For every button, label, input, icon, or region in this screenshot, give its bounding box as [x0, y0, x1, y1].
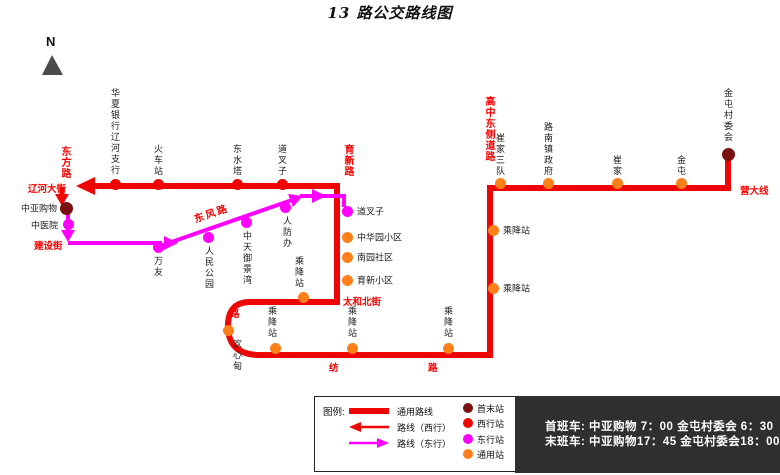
street-label: 路: [428, 360, 438, 374]
station-label: 乘降站: [503, 282, 530, 295]
station-dot: [280, 202, 291, 213]
station-dot: [63, 219, 74, 230]
legend-stop-west: 西行站: [463, 417, 504, 429]
station-label: 人防办: [282, 216, 292, 249]
legend-line-label: 路线（东行）: [397, 437, 451, 450]
station-label: 乘降站: [503, 224, 530, 237]
legend-line-common: 通用路线: [347, 405, 433, 417]
station-label: 东水塔: [232, 144, 242, 177]
westbound-arrowhead: [76, 177, 95, 195]
legend-stop-east: 东行站: [463, 433, 504, 445]
station-label: 乘降站: [347, 306, 357, 339]
legend-line-label: 通用路线: [397, 405, 433, 418]
station-dot: [277, 179, 288, 190]
route-common-line: [90, 151, 728, 355]
eastbound-arrow-swatch: [347, 438, 391, 448]
station-dot: [153, 179, 164, 190]
station-dot: [270, 343, 281, 354]
station-label: 崔家: [612, 155, 622, 177]
legend-stop-label: 通用站: [477, 448, 504, 461]
station-dot: [488, 225, 499, 236]
street-label: 高中东侧道路: [483, 96, 493, 162]
legend-box: 图例: 通用路线 路线（西行） 路线（东行） 首末站: [314, 396, 516, 472]
station-dot: [488, 283, 499, 294]
station-dot: [298, 292, 309, 303]
station-label: 乘降站: [267, 306, 277, 339]
schedule-panel: 首班车: 中亚购物 7：00 金屯村委会 6：30 末班车: 中亚购物17：45…: [515, 396, 780, 473]
street-label: 路: [230, 306, 240, 320]
station-label: 万友: [153, 256, 163, 278]
page-title: 13 路公交路线图: [327, 2, 452, 23]
street-label: 东方路: [59, 146, 69, 179]
station-dot: [241, 217, 252, 228]
terminal-stop-dot-icon: [463, 403, 473, 413]
station-dot: [722, 148, 735, 161]
street-label: 纺: [329, 360, 339, 374]
compass-north-label: N: [46, 34, 55, 49]
station-label: 崔家三队: [495, 133, 505, 177]
legend-stop-terminal: 首末站: [463, 402, 504, 414]
station-dot: [342, 252, 353, 263]
street-label: 太和北街: [343, 294, 381, 308]
schedule-last-bus: 末班车: 中亚购物17：45 金屯村委会18：00: [545, 435, 780, 450]
common-stop-dot-icon: [463, 449, 473, 459]
compass-needle: [42, 55, 63, 75]
station-dot: [676, 178, 687, 189]
street-label: 辽河大街: [28, 181, 66, 195]
station-label: 中天御景湾: [242, 231, 252, 286]
station-label: 欢心甸: [232, 339, 242, 372]
station-label: 道叉子: [357, 205, 384, 218]
station-label: 金屯村委会: [723, 88, 733, 143]
street-label: 营大线: [740, 183, 769, 197]
station-label: 火车站: [153, 144, 163, 177]
legend-line-west: 路线（西行）: [347, 421, 451, 433]
station-label: 人民公园: [204, 246, 214, 290]
street-label: 建设街: [34, 238, 63, 252]
station-dot: [203, 232, 214, 243]
schedule-first-bus: 首班车: 中亚购物 7：00 金屯村委会 6：30: [545, 420, 780, 435]
station-dot: [443, 343, 454, 354]
station-label: 路南镇政府: [543, 122, 553, 177]
station-dot: [543, 178, 554, 189]
station-dot: [342, 206, 353, 217]
legend-title: 图例:: [323, 404, 345, 418]
station-label: 道叉子: [277, 144, 287, 177]
station-label: 中华园小区: [357, 231, 402, 244]
station-dot: [60, 202, 73, 215]
station-label: 华夏银行辽河支行: [110, 88, 120, 176]
station-dot: [223, 325, 234, 336]
station-dot: [342, 232, 353, 243]
station-label: 乘降站: [294, 256, 304, 289]
eastbound-stop-dot-icon: [463, 434, 473, 444]
station-dot: [342, 275, 353, 286]
station-dot: [153, 242, 164, 253]
station-label: 育新小区: [357, 274, 393, 287]
common-route-swatch: [347, 406, 391, 416]
legend-stop-label: 东行站: [477, 433, 504, 446]
station-label: 金屯: [676, 155, 686, 177]
station-dot: [347, 343, 358, 354]
station-dot: [232, 179, 243, 190]
legend-stop-label: 首末站: [477, 402, 504, 415]
bus-route-map-page: 13 路公交路线图 N 华夏银行辽河支行火车站东水塔道叉子中亚购物中医院万友人民…: [0, 0, 780, 475]
station-dot: [110, 179, 121, 190]
legend-stop-common: 通用站: [463, 448, 504, 460]
station-label: 中医院: [31, 219, 58, 232]
legend-line-label: 路线（西行）: [397, 421, 451, 434]
westbound-stop-dot-icon: [463, 418, 473, 428]
station-label: 南园社区: [357, 251, 393, 264]
legend-line-east: 路线（东行）: [347, 437, 451, 449]
legend-stop-label: 西行站: [477, 417, 504, 430]
westbound-arrow-swatch: [347, 422, 391, 432]
station-dot: [495, 178, 506, 189]
street-label: 育新路: [342, 144, 352, 177]
station-dot: [612, 178, 623, 189]
station-label: 中亚购物: [21, 202, 57, 215]
station-label: 乘降站: [443, 306, 453, 339]
